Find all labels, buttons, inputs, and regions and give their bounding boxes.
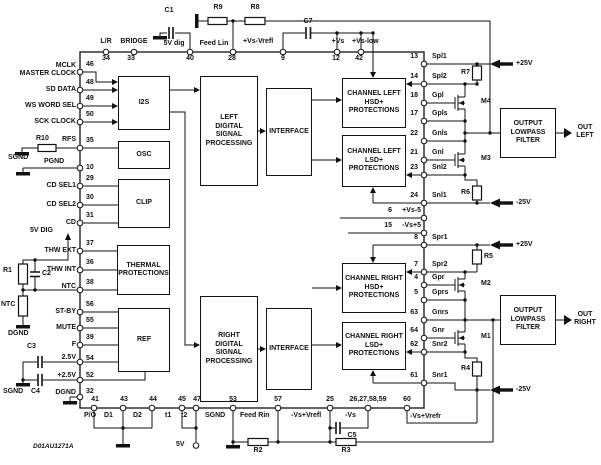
pin-label-gnls: Gnls: [432, 130, 472, 138]
pin-num: 29: [86, 175, 102, 183]
label-sgnd-caps: SGND: [3, 388, 29, 396]
block-interface-right: INTERFACE: [266, 308, 312, 390]
label-plus25v-left-high: +25V: [516, 60, 546, 68]
pin-label-vs-vrefl-bottom: -Vs+Vrefl: [291, 412, 329, 420]
label-ntc: NTC: [1, 301, 19, 309]
pin-num: 56: [86, 301, 102, 309]
pin-num: 64: [398, 327, 418, 335]
pin-label-vs-vrefl: +Vs-Vrefl: [243, 38, 285, 46]
block-channel-right-hsd: CHANNEL RIGHT HSD+ PROTECTIONS: [342, 263, 406, 313]
pin-num: 53: [226, 396, 240, 404]
label-m4: M4: [481, 98, 497, 106]
pin-num: 32: [86, 388, 102, 396]
block-right-dsp: RIGHT DIGITAL SIGNAL PROCESSING: [200, 296, 258, 402]
block-channel-right-lsd: CHANNEL RIGHT LSD+ PROTECTIONS: [342, 322, 406, 370]
label-m2: M2: [481, 280, 497, 288]
pin-num: 40: [183, 55, 197, 63]
label-r6: R6: [454, 189, 470, 197]
pin-num: 45: [175, 396, 189, 404]
pin-label-snr2: Snr2: [432, 341, 472, 349]
pin-label-thw-ext: THW EXT: [0, 247, 76, 255]
pin-num: 62: [398, 341, 418, 349]
label-m1: M1: [481, 333, 497, 341]
pin-num: 22: [398, 130, 418, 138]
pin-label-snr1: Snr1: [432, 372, 472, 380]
pin-num: 37: [86, 240, 102, 248]
label-sgnd-rfs: SGND: [8, 154, 36, 162]
label-5v-dig: 5V DIG: [30, 227, 66, 235]
label-minus25v-right-low: -25V: [516, 386, 546, 394]
pin-label-gpr: Gpr: [432, 274, 472, 282]
pin-num: 63: [398, 309, 418, 317]
pin-num: 60: [400, 396, 414, 404]
pin-label-ntc: NTC: [0, 283, 76, 291]
label-r9: R9: [209, 4, 227, 12]
pin-label-pgnd: PGND: [44, 158, 76, 166]
pin-num: 44: [146, 396, 160, 404]
label-r2: R2: [249, 447, 267, 455]
pin-label-stby: ST-BY: [0, 308, 76, 316]
pin-num: 39: [86, 334, 102, 342]
pin-label-d2: D2: [133, 412, 149, 420]
pin-num: 9: [276, 55, 290, 63]
pin-label-ws: WS WORD SEL: [0, 102, 76, 110]
pin-label-2v5: 2.5V: [0, 354, 76, 362]
pin-num: 24: [398, 192, 418, 200]
block-osc: OSC: [118, 141, 170, 169]
pin-num: 55: [86, 317, 102, 325]
label-out-left: OUT LEFT: [570, 124, 600, 140]
pin-num: 7: [398, 261, 418, 269]
pin-num: 5: [398, 289, 418, 297]
pin-label-lr: L/R: [96, 38, 116, 46]
pin-num: 36: [86, 259, 102, 267]
pin-label-cd-sel2: CD SEL2: [0, 201, 76, 209]
pin-label-po: P/O: [84, 412, 104, 420]
block-output-lowpass-filter-right: OUTPUT LOWPASS FILTER: [500, 295, 556, 345]
block-clip: CLIP: [118, 179, 170, 228]
pin-num: 50: [86, 111, 102, 119]
label-out-right: OUT RIGHT: [570, 311, 600, 327]
pin-label-t1: t1: [165, 412, 179, 420]
block-thermal-protections: THERMAL PROTECTIONS: [117, 245, 170, 295]
pin-label-gpl: Gpl: [432, 92, 472, 100]
label-r4: R4: [454, 365, 470, 373]
pin-label-sd-data: SD DATA: [0, 86, 76, 94]
pin-num: 48: [86, 79, 102, 87]
pin-label-snl2: Snl2: [432, 164, 472, 172]
pin-label-spr1: Spr1: [432, 234, 472, 242]
pin-num: 26,27,58,59: [342, 396, 394, 404]
pin-label-minusvs-5: -Vs+5: [394, 222, 421, 230]
label-dgnd-ntc: DGND: [8, 330, 36, 338]
pin-label-cd: CD: [0, 219, 76, 227]
pin-num: 21: [398, 149, 418, 157]
pin-label-feed-rin: Feed Rin: [240, 412, 274, 420]
pin-label-vs: +Vs: [328, 38, 348, 46]
block-channel-left-hsd: CHANNEL LEFT HSD+ PROTECTIONS: [342, 78, 406, 128]
pin-num: 17: [398, 110, 418, 118]
label-c1: C1: [162, 7, 176, 15]
pin-num: 4: [398, 274, 418, 282]
block-ref: REF: [118, 308, 170, 372]
pin-label-spl1: Spl1: [432, 53, 472, 61]
pin-num: 12: [329, 55, 343, 63]
label-r8: R8: [247, 4, 263, 12]
pin-label-vs-vrefr: -Vs+Vrefr: [410, 413, 452, 421]
pin-num: 61: [398, 372, 418, 380]
pin-label-vs-low: +Vs-low: [352, 38, 388, 46]
label-plus25v-right-high: +25V: [516, 241, 546, 249]
pin-label-sck: SCK CLOCK: [0, 118, 76, 126]
pin-label-minus-vs: -Vs: [345, 412, 363, 420]
block-output-lowpass-filter-left: OUTPUT LOWPASS FILTER: [500, 108, 556, 158]
block-interface-left: INTERFACE: [266, 88, 312, 176]
block-left-dsp: LEFT DIGITAL SIGNAL PROCESSING: [200, 76, 258, 186]
pin-label-d1: D1: [104, 412, 120, 420]
pin-label-p2v5: +2.5V: [0, 372, 76, 380]
block-channel-left-lsd: CHANNEL LEFT LSD+ PROTECTIONS: [342, 135, 406, 187]
pin-num: 42: [352, 55, 366, 63]
pin-num: 25: [323, 396, 337, 404]
pin-num: 31: [86, 212, 102, 220]
pin-num: 13: [398, 53, 418, 61]
pin-num: 10: [86, 164, 102, 172]
pin-label-gpls: Gpls: [432, 110, 472, 118]
label-r5: R5: [484, 253, 500, 261]
pin-num: 49: [86, 95, 102, 103]
pin-num: 15: [376, 222, 392, 230]
pin-num: 33: [124, 55, 138, 63]
pin-num: 52: [86, 372, 102, 380]
pin-num: 35: [86, 137, 102, 145]
pin-num: 47: [190, 396, 204, 404]
pin-num: 38: [86, 279, 102, 287]
pin-num: 28: [225, 55, 239, 63]
pin-num: 46: [86, 61, 102, 69]
pin-label-bridge: BRIDGE: [114, 38, 154, 46]
label-c2: C2: [42, 270, 58, 278]
pin-num: 43: [117, 396, 131, 404]
pin-num: 30: [86, 194, 102, 202]
pin-num: 57: [271, 396, 285, 404]
pin-label-gnr: Gnr: [432, 327, 472, 335]
pin-label-gnl: Gnl: [432, 149, 472, 157]
label-m3: M3: [481, 155, 497, 163]
pin-label-spr2: Spr2: [432, 261, 472, 269]
figure-code: D01AU1271A: [33, 443, 123, 450]
label-r10: R10: [36, 135, 56, 143]
pin-num: 23: [398, 164, 418, 172]
label-c5: C5: [344, 432, 360, 440]
label-c4: C4: [31, 388, 47, 396]
label-minus25v-left-low: -25V: [516, 199, 546, 207]
pin-label-vs-minus5: +Vs-5: [394, 207, 421, 215]
pin-label-5vdig: 5V dig: [158, 40, 190, 48]
pin-num: 54: [86, 355, 102, 363]
pin-num: 8: [398, 234, 418, 242]
pin-num: 18: [398, 92, 418, 100]
pin-label-t2: t2: [181, 412, 195, 420]
label-r3: R3: [337, 447, 355, 455]
pin-label-feed-lin: Feed Lin: [196, 40, 232, 48]
pin-label-sgnd: SGND: [205, 412, 231, 420]
pin-label-gnrs: Gnrs: [432, 309, 472, 317]
pin-label-mclk: MCLK MASTER CLOCK: [0, 62, 76, 78]
pin-num: 41: [88, 396, 102, 404]
pin-num: 14: [398, 73, 418, 81]
label-5v: 5V: [176, 441, 192, 449]
pin-label-gprs: Gprs: [432, 289, 472, 297]
label-r7: R7: [454, 69, 470, 77]
label-r1: R1: [3, 267, 19, 275]
pin-num: 6: [376, 207, 392, 215]
label-c3: C3: [27, 343, 43, 351]
label-c7: C7: [300, 18, 316, 26]
block-diagram: I2S OSC CLIP THERMAL PROTECTIONS REF LEF…: [0, 0, 601, 465]
pin-label-cd-sel1: CD SEL1: [0, 182, 76, 190]
block-i2s: I2S: [118, 76, 170, 130]
